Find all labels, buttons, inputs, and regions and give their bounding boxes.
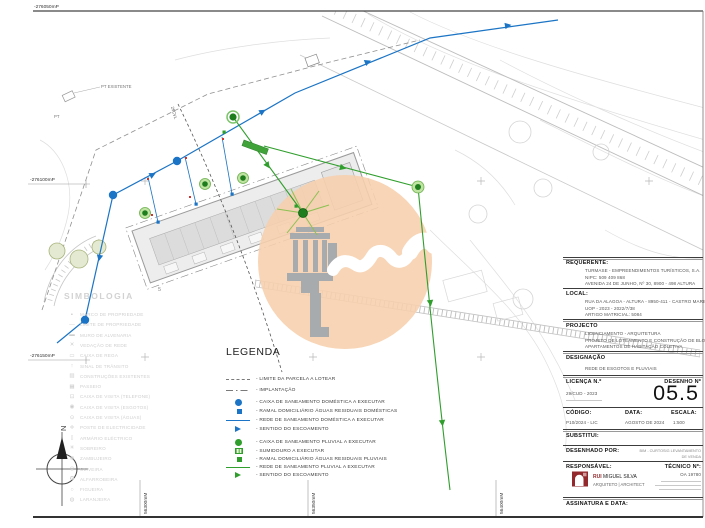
desenhado-value-line2: DE VENDA [682,455,701,459]
simbologia-glyph: ✳ [64,445,80,451]
local-line: RUA DA ALAGOA - ALTURA - 8950-411 - CAST… [585,299,705,304]
simbologia-label: MURO DE ALVENARIA [80,333,132,338]
data-label: DATA: [625,410,642,416]
dashdot-line-symbol [226,390,250,391]
responsavel-label: RESPONSÁVEL: [566,464,612,470]
legend-label: - REDE DE SANEAMENTO DOMÉSTICA A EXECUTA… [256,418,384,423]
gutter-grate [242,140,268,155]
simbologia-label: PASSEIO [80,384,101,389]
separator [563,461,703,462]
separator [563,377,703,378]
grid-label: 56400mM [499,493,505,514]
simbologia-glyph: ▯ [64,435,80,441]
drawing-sheet: { "sheet": { "grid_left": ["-276050mP", … [0,0,705,528]
simbologia-label: VEDAÇÃO DE REDE [80,343,127,348]
simbologia-glyph: ▭ [64,353,80,359]
local-line: UOP - 2023 - 2022/7/38 [585,306,635,311]
simbologia-label: CAIXA DE VISITA (ESGOTOS) [80,405,148,410]
escala-label: ESCALA: [671,410,697,416]
simbologia-glyph: ▨ [64,373,80,379]
projecto-line: PROJETO DE LOTEAMENTO E CONSTRUÇÃO DE BL… [585,338,705,343]
local-line: ARTIGO MATRICIAL: 5084 [585,312,642,317]
simbologia-label: CAIXA DE VISITA (ÁGUAS) [80,415,141,420]
rule [566,400,602,401]
utility-box [305,54,319,67]
designacao-line: REDE DE ESGOTOS E PLUVIAIS [585,366,657,371]
simbologia-glyph: ↑ [64,363,80,369]
codigo-label: CÓDIGO: [566,410,592,416]
legend-label: - IMPLANTAÇÃO [256,388,296,393]
legend-block: LEGENDA - LIMITE DA PARCELA A LOTEAR - I… [226,346,481,486]
desenhado-label: DESENHADO POR: [566,448,619,454]
responsavel-title: ARQUITETO | ARCHITECT [593,482,645,487]
green-grate-symbol [235,448,243,454]
projecto-label: PROJECTO [566,323,598,329]
projecto-line: LICENCIAMENTO - ARQUITETURA [585,331,661,336]
simbologia-glyph: ◍ [64,497,80,503]
requerente-label: REQUERENTE: [566,260,608,266]
grid-label: 56350mM [311,493,317,514]
simbologia-glyph: ▦ [64,384,80,390]
simbologia-label: POSTE DE ELECTRICIDADE [80,425,146,430]
separator [563,375,703,376]
separator [563,353,703,354]
separator [563,497,703,498]
simbologia-label: CAIXA DE REGA [80,353,118,358]
simbologia-label: LIMITE DE PROPRIEDADE [80,322,141,327]
desenho-number: 05.5 [653,381,699,406]
simbologia-label: CONSTRUÇÕES EXISTENTES [80,374,150,379]
grid-label: -276150mP [30,353,55,359]
simbologia-glyph: ▬ [64,332,80,338]
cable-label: 25CVL [170,106,178,120]
simbologia-label: LARANJEIRA [80,497,110,502]
legend-label: - REDE DE SANEAMENTO PLUVIAL A EXECUTAR [256,465,375,470]
simbologia-glyph: ✛ [64,425,80,431]
simbologia-block: SIMBOLOGIA ▪MARCO DE PROPRIEDADE —LIMITE… [64,291,229,506]
pt-symbol [62,87,100,102]
green-manhole-symbol [235,439,242,446]
simbologia-label: OLIVEIRA [80,467,103,472]
legend-label: - LIMITE DA PARCELA A LOTEAR [256,377,335,382]
architect-logo-icon [571,471,589,492]
desenhado-value-line1: BIM - CURTOSIG LEVANTAMENTO [640,449,701,453]
legend-label: - SENTIDO DO ESCOAMENTO [256,473,329,478]
blue-square-symbol [237,409,242,414]
substitui-label: SUBSTITUI: [566,433,599,439]
title-block: REQUERENTE: TURMASE - EMPREENDIMENTOS TU… [563,255,704,518]
responsavel-name-rest: MIGUEL SILVA [602,474,637,480]
simbologia-glyph: ○ [64,487,80,493]
legend-label: - SENTIDO DO ESCOAMENTO [256,427,329,432]
municipality-watermark [258,175,434,349]
pt-existente-label: PT EXISTENTE [101,84,132,89]
simbologia-glyph: ◎ [64,466,80,472]
separator [563,351,703,352]
dashed-line-symbol [226,379,250,380]
responsavel-name-red: RUI [593,474,602,480]
green-flow-arrow-symbol [235,472,241,478]
simbologia-label: MARCO DE PROPRIEDADE [80,312,143,317]
separator [563,319,703,320]
legend-title: LEGENDA [226,346,481,358]
requerente-line: NIPC: 509 409 868 [585,275,625,280]
separator [563,321,703,322]
requerente-line: AVENIDA 24 DE JUNHO, Nº 30, 8900 - 498 A… [585,281,695,286]
codigo-value: P10/2024 - LIC [566,420,598,425]
simbologia-glyph: ⊡ [64,394,80,400]
green-square-symbol [237,457,242,462]
rule [661,481,701,482]
simbologia-label: ARMÁRIO ELÉCTRICO [80,436,132,441]
rule [655,485,701,486]
simbologia-label: SINAL DE TRÂNSITO [80,364,129,369]
simbologia-glyph: ◉ [64,404,80,410]
grid-label: -276100mP [30,177,55,183]
rule [659,489,701,490]
legend-label: - RAMAL DOMICILIÁRIO ÁGUAS RESIDUAIS PLU… [256,457,387,462]
legend-label: - CAIXA DE SANEAMENTO DOMÉSTICA A EXECUT… [256,400,385,405]
simbologia-glyph: ⊙ [64,415,80,421]
separator [563,499,703,500]
separator [563,407,703,408]
separator [563,429,703,430]
simbologia-label: SOBREIRO [80,446,106,451]
simbologia-label: ALFARROBEIRA [80,477,118,482]
separator [563,288,703,289]
separator [563,445,703,446]
tecnico-value: OA 19780 [680,472,701,477]
requerente-line: TURMASE - EMPREENDIMENTOS TURÍSTICOS, S.… [585,268,701,273]
licenca-label: LICENÇA N.º [566,379,601,385]
local-label: LOCAL: [566,291,588,297]
simbologia-glyph: — [64,322,80,328]
existing-constructions [443,270,523,321]
pt-abbr-label: PT [54,114,60,119]
green-line-symbol [226,467,250,468]
escala-value: 1:500 [673,420,685,425]
projecto-line: APARTAMENTOS DE HABITAÇÃO COLETIVA [585,344,682,349]
separator [563,257,703,258]
simbologia-label: CAIXA DE VISITA (TELEFONE) [80,394,150,399]
blue-flow-arrow-symbol [235,426,241,432]
simbologia-title: SIMBOLOGIA [64,291,229,301]
blue-manhole-symbol [235,399,242,406]
assinatura-label: ASSINATURA E DATA: [566,501,628,507]
tecnico-label: TÉCNICO Nº: [665,464,701,470]
simbologia-glyph: ✪ [64,476,80,482]
simbologia-glyph: ❋ [64,456,80,462]
simbologia-label: FIGUEIRA [80,487,103,492]
separator [563,431,703,432]
licenca-value: 29/CUD - 2023 [566,391,597,396]
legend-label: - SUMIDOURO A EXECUTAR [256,449,324,454]
responsavel-name: RUI MIGUEL SILVA [593,474,637,480]
designacao-label: DESIGNAÇÃO [566,355,605,361]
simbologia-label: ZAMBUJEIRO [80,456,112,461]
legend-label: - CAIXA DE SANEAMENTO PLUVIAL A EXECUTAR [256,440,376,445]
grid-label: -276050mP [34,4,59,10]
legend-label: - RAMAL DOMICILIÁRIO ÁGUAS RESIDUAIS DOM… [256,409,397,414]
blue-line-symbol [226,420,250,421]
data-value: AGOSTO DE 2024 [625,420,664,425]
simbologia-glyph: ▪ [64,312,80,318]
simbologia-glyph: ✕ [64,342,80,348]
